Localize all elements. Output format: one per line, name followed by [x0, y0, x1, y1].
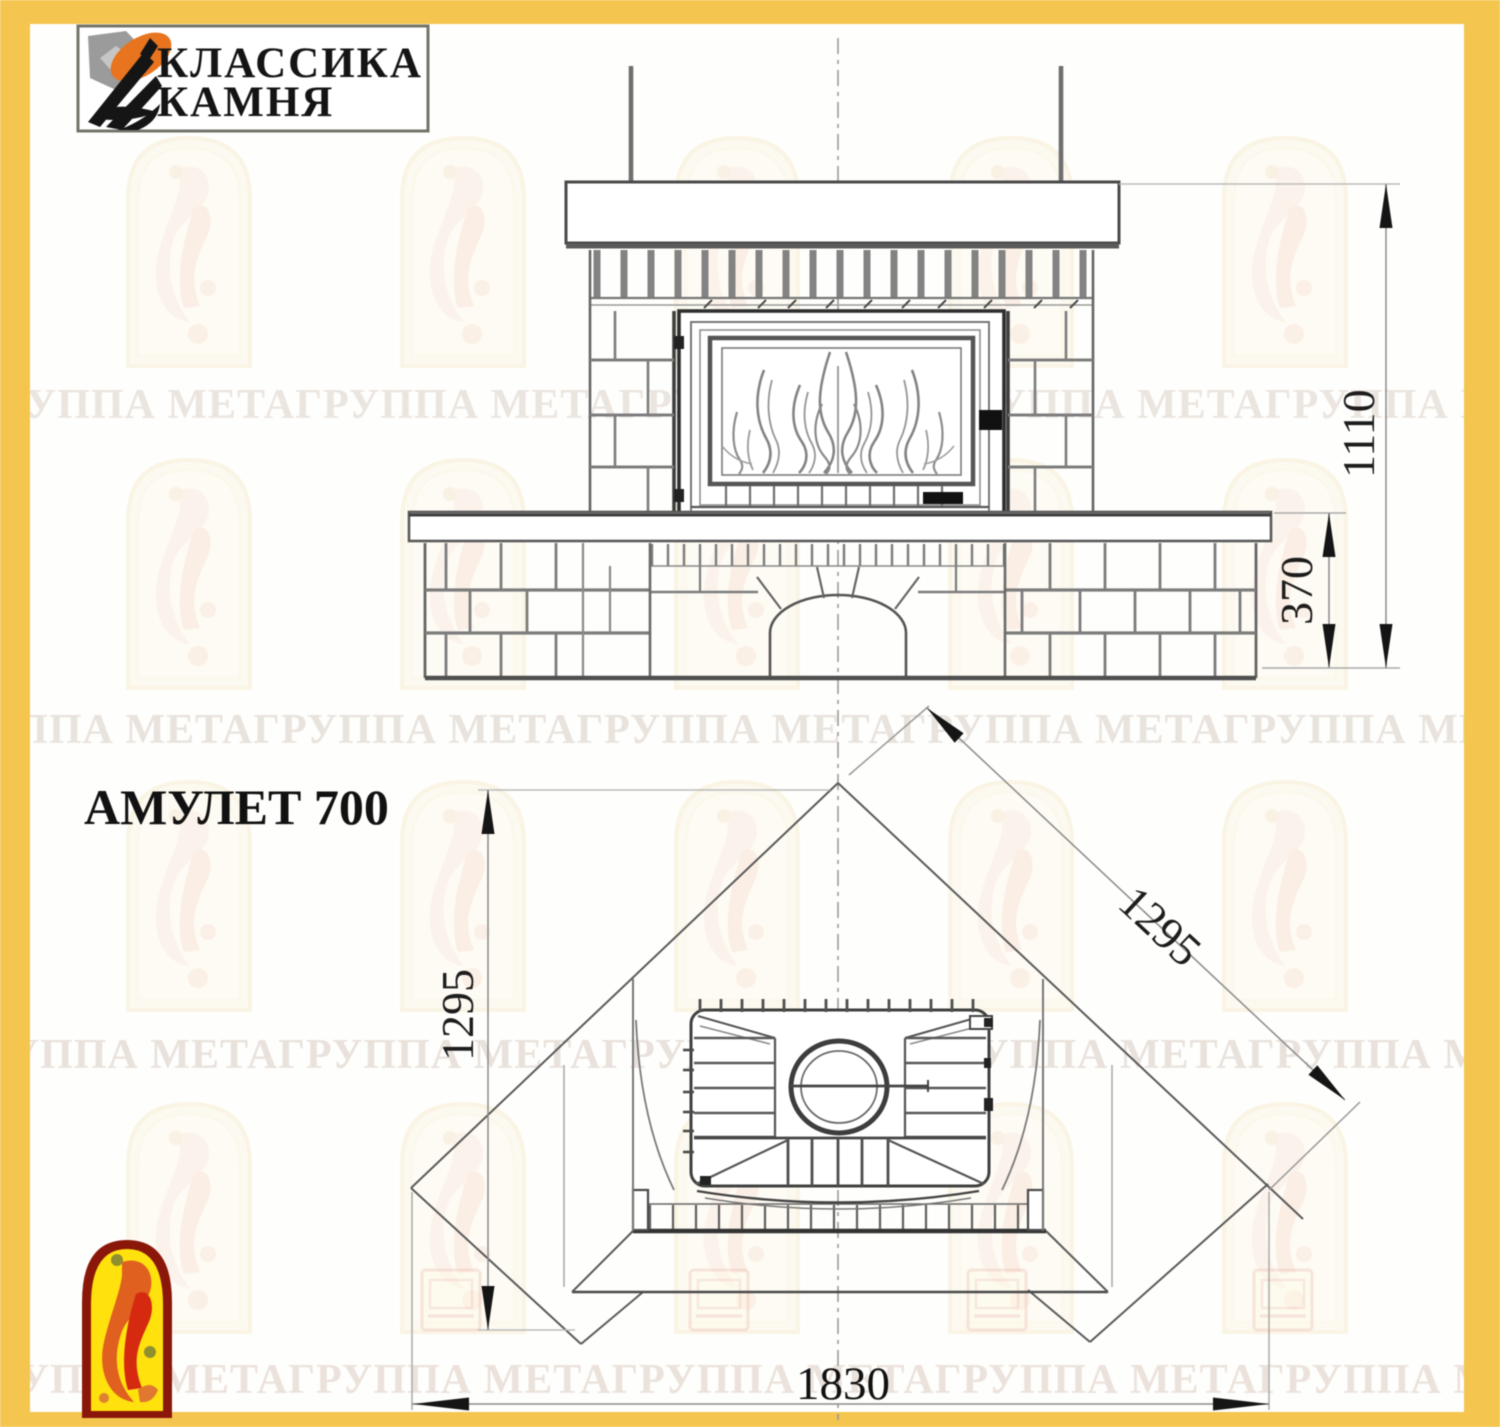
svg-text:1295: 1295 — [432, 969, 483, 1061]
svg-text:ГРУППА МЕТАГРУППА МЕТАГРУППА М: ГРУППА МЕТАГРУППА МЕТАГРУППА МЕТАГРУППА … — [0, 707, 1500, 753]
svg-text:ГРУППА МЕТАГРУППА МЕТАГРУППА М: ГРУППА МЕТАГРУППА МЕТАГРУППА МЕТАГРУППА … — [0, 1357, 1500, 1403]
svg-text:1110: 1110 — [1333, 389, 1384, 478]
svg-text:АМУЛЕТ 700: АМУЛЕТ 700 — [84, 779, 389, 835]
svg-text:370: 370 — [1271, 556, 1322, 625]
svg-text:1830: 1830 — [796, 1358, 890, 1410]
svg-text:КАМНЯ: КАМНЯ — [157, 79, 334, 126]
